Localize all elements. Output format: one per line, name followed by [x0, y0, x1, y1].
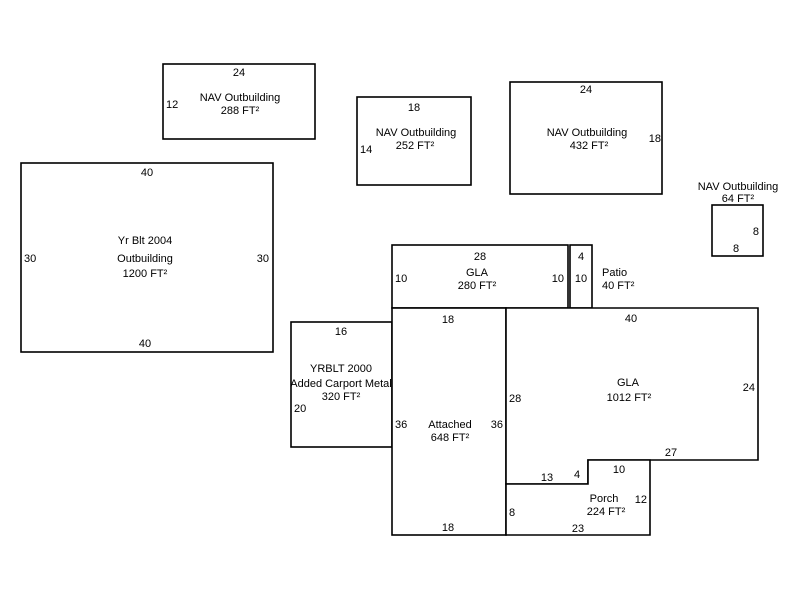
dim-label-top: 18	[442, 314, 454, 326]
dim-label-right: 12	[635, 494, 647, 506]
area-name-label: Porch	[590, 493, 619, 505]
dim-label-step-horizontal: 13	[541, 472, 553, 484]
dim-label-bottom: 8	[733, 243, 739, 255]
dim-label-top: 18	[408, 102, 420, 114]
area-gla-1012: 40 24 28 27 13 4 GLA 1012 FT²	[506, 308, 758, 484]
building-nav-outbuilding-64: NAV Outbuilding 64 FT² 8 8	[698, 181, 779, 256]
dim-label-left: 14	[360, 144, 372, 156]
dim-label-right: 8	[753, 226, 759, 238]
dim-label-left: 8	[509, 507, 515, 519]
building-nav-outbuilding-288: 24 12 NAV Outbuilding 288 FT²	[163, 64, 315, 139]
area-name-label: Patio	[602, 267, 627, 279]
dim-label-top: 10	[613, 464, 625, 476]
dim-label-step-vertical: 4	[574, 469, 580, 481]
building-yrblt2000-carport: 16 20 YRBLT 2000 Added Carport Metal 320…	[290, 322, 392, 447]
dim-label-top: 16	[335, 326, 347, 338]
dim-label-left: 10	[395, 273, 407, 285]
building-name-label: YRBLT 2000	[310, 363, 372, 375]
area-attached-648: 18 36 36 18 Attached 648 FT²	[392, 308, 506, 535]
dim-label-bottom: 23	[572, 523, 584, 535]
property-sketch: 40 30 30 40 Yr Blt 2004 Outbuilding 1200…	[0, 0, 800, 600]
area-name-label: GLA	[466, 267, 489, 279]
building-type-label: Outbuilding	[117, 253, 173, 265]
dim-label-right: 18	[649, 133, 661, 145]
building-nav-outbuilding-432: 24 18 NAV Outbuilding 432 FT²	[510, 82, 662, 194]
building-area-label: 64 FT²	[722, 193, 755, 205]
area-size-label: 224 FT²	[587, 506, 626, 518]
building-area-label: 432 FT²	[570, 140, 609, 152]
dim-label-left: 30	[24, 253, 36, 265]
area-patio-40: 4 10 Patio 40 FT²	[570, 245, 635, 308]
dim-label-top: 24	[580, 84, 592, 96]
building-name-label: Yr Blt 2004	[118, 235, 172, 247]
dim-label-bottom: 18	[442, 522, 454, 534]
dim-label-right: 30	[257, 253, 269, 265]
dim-label-side: 10	[575, 273, 587, 285]
dim-label-left: 36	[395, 419, 407, 431]
dim-label-top: 40	[141, 167, 153, 179]
building-type-label: Added Carport Metal	[290, 378, 392, 390]
dim-label-right: 36	[491, 419, 503, 431]
dim-label-top: 40	[625, 313, 637, 325]
area-size-label: 280 FT²	[458, 280, 497, 292]
area-size-label: 40 FT²	[602, 280, 635, 292]
dim-label-top: 24	[233, 67, 245, 79]
building-area-label: 252 FT²	[396, 140, 435, 152]
dim-label-right: 24	[743, 382, 755, 394]
building-name-label: NAV Outbuilding	[200, 92, 281, 104]
dim-label-left: 28	[509, 393, 521, 405]
area-size-label: 1012 FT²	[607, 392, 652, 404]
building-yrblt2004-outbuilding: 40 30 30 40 Yr Blt 2004 Outbuilding 1200…	[21, 163, 273, 352]
building-nav-outbuilding-252: 18 14 NAV Outbuilding 252 FT²	[357, 97, 471, 185]
area-size-label: 648 FT²	[431, 432, 470, 444]
building-area-label: 320 FT²	[322, 391, 361, 403]
building-name-label: NAV Outbuilding	[547, 127, 628, 139]
dim-label-left: 12	[166, 99, 178, 111]
sketch-canvas: 40 30 30 40 Yr Blt 2004 Outbuilding 1200…	[0, 0, 800, 600]
dim-label-bottom: 40	[139, 338, 151, 350]
area-gla-280: 28 10 10 GLA 280 FT²	[392, 245, 568, 308]
dim-label-top: 28	[474, 251, 486, 263]
building-name-label: NAV Outbuilding	[698, 181, 779, 193]
dim-label-bottom: 27	[665, 447, 677, 459]
dim-label-top: 4	[578, 251, 584, 263]
dim-label-left: 20	[294, 403, 306, 415]
building-area-label: 1200 FT²	[123, 268, 168, 280]
dim-label-right: 10	[552, 273, 564, 285]
building-area-label: 288 FT²	[221, 105, 260, 117]
area-name-label: Attached	[428, 419, 471, 431]
building-name-label: NAV Outbuilding	[376, 127, 457, 139]
area-name-label: GLA	[617, 377, 640, 389]
